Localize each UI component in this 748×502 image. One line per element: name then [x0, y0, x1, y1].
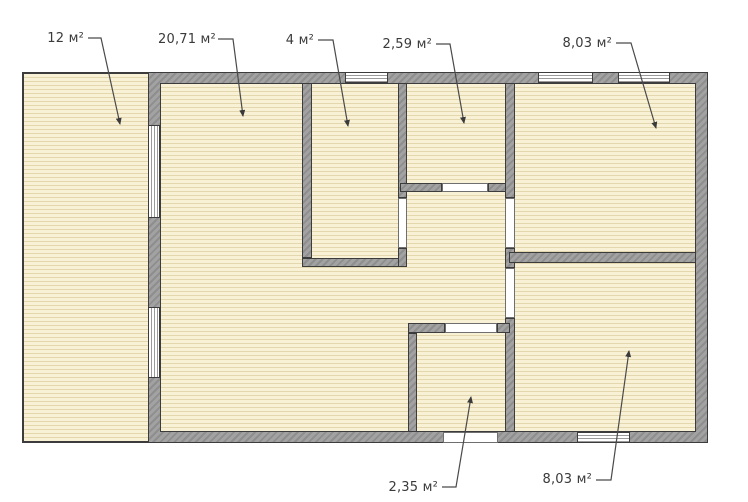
- window-top-wall-middle: [538, 72, 593, 83]
- room-label-small-room-top: 4 м²: [276, 33, 314, 48]
- wall-right-rooms-divider: [509, 252, 696, 263]
- wall-closet-bottom-left: [400, 183, 442, 192]
- wall-hall-right-upper: [505, 83, 515, 198]
- door-closet: [442, 183, 488, 192]
- room-label-veranda: 12 м²: [44, 31, 84, 46]
- door-entrance-exterior: [443, 432, 498, 443]
- room-label-entry-bottom: 2,35 м²: [386, 480, 438, 495]
- wall-hall-right-lower: [505, 318, 515, 432]
- window-left-wall-lower: [148, 307, 160, 378]
- wall-small-room-bottom: [302, 258, 407, 267]
- door-room-top-right: [505, 198, 515, 248]
- room-label-closet-top: 2,59 м²: [380, 37, 432, 52]
- room-label-room-bottom-right: 8,03 м²: [540, 472, 592, 487]
- wall-entry-top-right: [497, 323, 510, 333]
- window-bottom-wall: [577, 432, 630, 443]
- window-top-wall-right: [618, 72, 670, 83]
- wall-small-room-right-lower: [398, 248, 407, 267]
- door-room-bottom-right: [505, 268, 515, 318]
- wall-small-room-right-upper: [398, 83, 407, 198]
- floor-plan: 12 м² 20,71 м² 4 м² 2,59 м² 8,03 м² 2,35…: [0, 0, 748, 502]
- room-label-living-room: 20,71 м²: [158, 32, 214, 47]
- door-small-room: [398, 198, 407, 248]
- veranda-room: [22, 72, 148, 443]
- room-label-room-top-right: 8,03 м²: [560, 36, 612, 51]
- wall-entry-top-left: [408, 323, 445, 333]
- wall-entry-left: [408, 333, 417, 432]
- window-top-wall-left: [345, 72, 388, 83]
- door-entry-room: [445, 323, 497, 333]
- wall-living-room-right: [302, 83, 312, 258]
- window-left-wall-upper: [148, 125, 160, 218]
